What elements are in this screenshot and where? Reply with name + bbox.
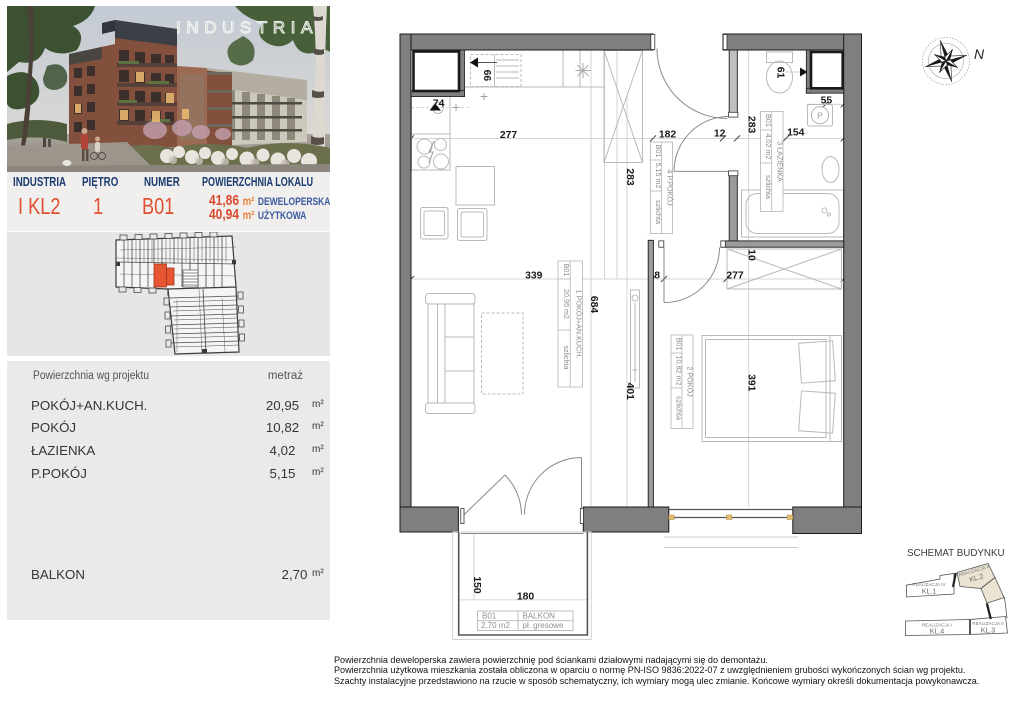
svg-text:B01: B01 xyxy=(764,114,773,127)
svg-text:KL.1: KL.1 xyxy=(922,589,937,596)
svg-text:N: N xyxy=(974,46,985,62)
svg-text:B01: B01 xyxy=(654,145,663,158)
svg-text:74: 74 xyxy=(433,99,445,110)
svg-text:1 POKÓJ+AN.KUCH.: 1 POKÓJ+AN.KUCH. xyxy=(575,290,584,359)
svg-text:B01: B01 xyxy=(675,338,684,351)
svg-text:10: 10 xyxy=(746,249,757,261)
svg-text:2,70 m2: 2,70 m2 xyxy=(481,621,510,630)
svg-text:REALIZACJA II: REALIZACJA II xyxy=(972,621,1003,626)
svg-text:182: 182 xyxy=(659,129,677,140)
svg-text:8: 8 xyxy=(654,271,660,282)
svg-text:INDUSTRIA: INDUSTRIA xyxy=(176,18,318,37)
svg-text:4 P.POKÓJ: 4 P.POKÓJ xyxy=(665,169,674,206)
svg-text:4.02 m2: 4.02 m2 xyxy=(764,134,773,160)
svg-text:283: 283 xyxy=(746,116,757,134)
svg-text:SCHEMAT BUDYNKU: SCHEMAT BUDYNKU xyxy=(907,548,1005,559)
svg-text:szlichta: szlichta xyxy=(562,346,571,370)
svg-text:283: 283 xyxy=(624,168,635,186)
svg-text:339: 339 xyxy=(525,271,543,282)
svg-text:277: 277 xyxy=(500,130,518,141)
svg-text:180: 180 xyxy=(517,591,535,602)
svg-text:REALIZACJA I: REALIZACJA I xyxy=(922,623,952,628)
svg-text:66: 66 xyxy=(481,70,492,82)
svg-text:5.15 m2: 5.15 m2 xyxy=(654,163,663,189)
svg-text:REALIZACJA IV: REALIZACJA IV xyxy=(912,582,946,587)
svg-text:55: 55 xyxy=(821,96,833,107)
svg-text:391: 391 xyxy=(746,374,757,392)
svg-text:3 ŁAZIENKA: 3 ŁAZIENKA xyxy=(776,141,785,182)
svg-text:B01: B01 xyxy=(482,612,497,621)
svg-text:KL.3: KL.3 xyxy=(981,628,996,635)
svg-text:BALKON: BALKON xyxy=(523,612,556,621)
svg-text:P: P xyxy=(817,110,823,120)
svg-text:10.82 m2: 10.82 m2 xyxy=(675,356,684,386)
svg-text:150: 150 xyxy=(471,576,482,594)
svg-text:684: 684 xyxy=(588,296,599,314)
svg-text:277: 277 xyxy=(726,271,744,282)
svg-text:B01: B01 xyxy=(562,264,571,277)
svg-text:KL.4: KL.4 xyxy=(930,629,945,636)
svg-text:szlichta: szlichta xyxy=(654,200,663,224)
svg-text:pł. gresowe: pł. gresowe xyxy=(523,621,564,630)
svg-text:szlichta: szlichta xyxy=(764,175,773,199)
svg-text:401: 401 xyxy=(624,383,635,401)
svg-text:szlichta: szlichta xyxy=(675,396,684,420)
svg-text:12: 12 xyxy=(714,129,726,140)
svg-text:61: 61 xyxy=(774,67,785,79)
svg-text:2 POKÓJ: 2 POKÓJ xyxy=(686,366,695,397)
svg-text:20.95 m2: 20.95 m2 xyxy=(562,289,571,319)
svg-text:154: 154 xyxy=(787,127,805,138)
